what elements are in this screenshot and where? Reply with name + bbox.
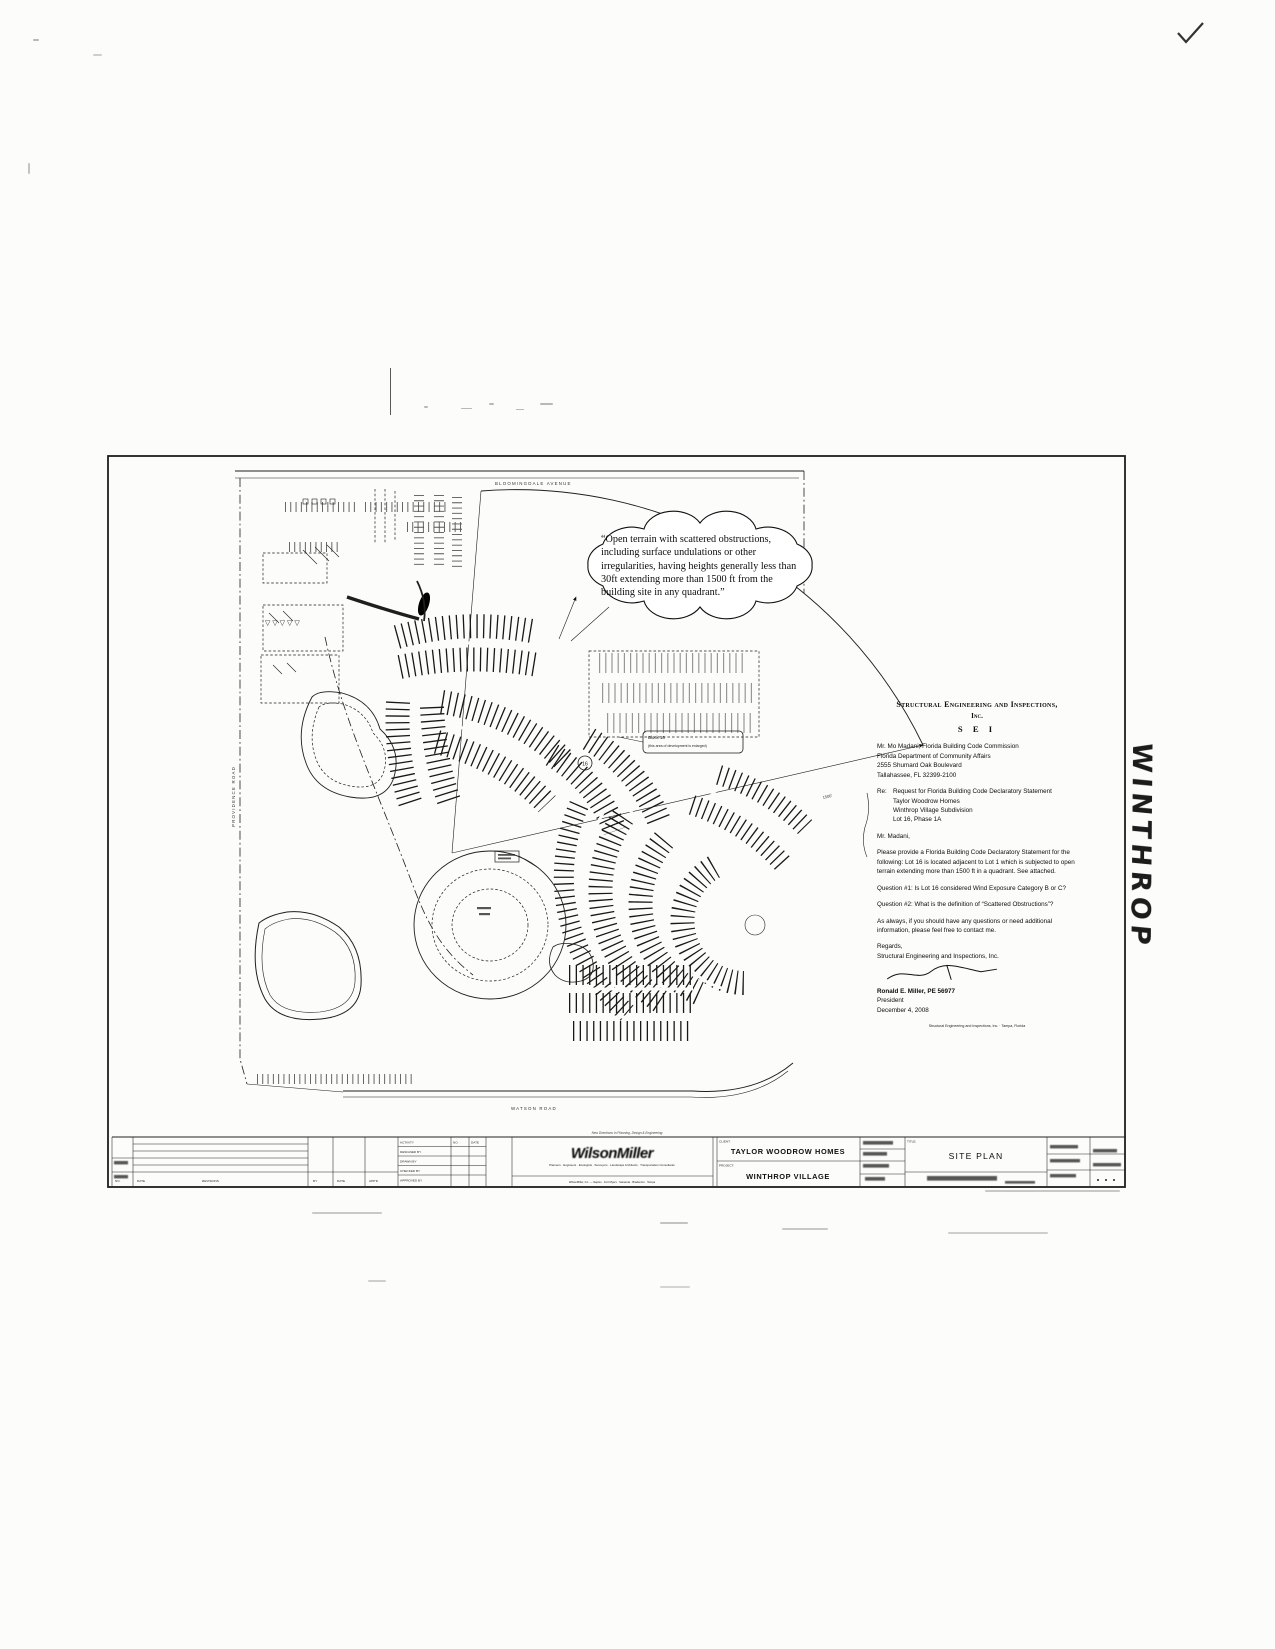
scan-speck <box>28 163 30 174</box>
client-name: TAYLOR WOODROW HOMES <box>731 1147 845 1156</box>
tb-rev-by: BY <box>313 1179 317 1183</box>
scan-speck <box>33 39 39 41</box>
handwritten-checkmark <box>1176 20 1206 46</box>
handwritten-margin-note: WINTHROP <box>1124 741 1157 951</box>
letter-para1: Please provide a Florida Building Code D… <box>877 848 1077 876</box>
letter-firm-name: Structural Engineering and Inspections, <box>877 699 1077 711</box>
re-label: Re: <box>877 787 893 825</box>
letter-para2: As always, if you should have any questi… <box>877 917 1077 936</box>
title-label: TITLE: <box>907 1140 916 1144</box>
drawing-number-smudge <box>927 1176 997 1181</box>
scan-speck <box>93 54 102 56</box>
scanned-site-plan-sheet: BLOOMINGDALE AVENUE PROVIDENCE ROAD WATS… <box>0 0 1275 1649</box>
letter-firm-inc: Inc. <box>877 711 1077 722</box>
tb-col-no: NO. <box>453 1141 459 1145</box>
firm-tagline: Planners · Engineers · Ecologists · Surv… <box>549 1163 675 1167</box>
letter-addressee: Mr. Mo Madani, Florida Building Code Com… <box>877 742 1077 780</box>
scan-stray-line <box>390 368 391 415</box>
letter-block: Structural Engineering and Inspections, … <box>877 699 1077 1033</box>
letter-salutation: Mr. Madani, <box>877 832 1077 841</box>
addressee-line: 2555 Shumard Oak Boulevard <box>877 761 1077 770</box>
scan-smudge <box>660 1286 690 1288</box>
scan-smudge <box>368 1280 386 1282</box>
map-note-box: Block 16 (this area of development is en… <box>619 731 743 753</box>
addressee-line: Florida Department of Community Affairs <box>877 752 1077 761</box>
tb-rev-appd: APP'D <box>369 1179 379 1183</box>
letter-re-block: Re: Request for Florida Building Code De… <box>877 787 1077 825</box>
future-phase-lots <box>589 651 759 737</box>
note-line1: Block 16 <box>648 735 665 740</box>
ponds <box>255 692 593 1020</box>
cloud-callout-text: “Open terrain with scattered obstruction… <box>601 533 799 600</box>
client-label: CLIENT: <box>719 1140 731 1144</box>
tb-rev-date2: DATE <box>337 1179 345 1183</box>
re-line: Lot 16, Phase 1A <box>893 815 1052 824</box>
tb-activity-3: CHECKED BY <box>400 1169 420 1173</box>
tb-rev-no: NO. <box>115 1179 121 1183</box>
sheet-title: SITE PLAN <box>949 1151 1004 1161</box>
road-label-left: PROVIDENCE ROAD <box>231 766 236 827</box>
tb-activity-0: ACTIVITY <box>400 1141 414 1145</box>
re-lines: Request for Florida Building Code Declar… <box>893 787 1052 825</box>
letter-question1: Question #1: Is Lot 16 considered Wind E… <box>877 884 1077 893</box>
tb-col-date: DATE <box>471 1141 479 1145</box>
letter-question2: Question #2: What is the definition of “… <box>877 900 1077 909</box>
re-line: Winthrop Village Subdivision <box>893 806 1052 815</box>
re-line: Request for Florida Building Code Declar… <box>893 787 1052 796</box>
scan-smudge <box>660 1222 688 1224</box>
firm-logo: WilsonMiller <box>571 1145 655 1162</box>
tb-smudge <box>1005 1181 1035 1184</box>
plat-map: BLOOMINGDALE AVENUE PROVIDENCE ROAD WATS… <box>231 471 923 1111</box>
note-line2: (this area of development is enlarged) <box>648 744 707 748</box>
project-name: WINTHROP VILLAGE <box>746 1172 830 1181</box>
scan-smudge <box>312 1212 382 1214</box>
signer-name: Ronald E. Miller, PE 56977 <box>877 987 1077 996</box>
lot-circle-label: 16 <box>582 762 588 768</box>
project-label: PROJECT: <box>719 1164 734 1168</box>
tb-rev-revs: REVISIONS <box>202 1179 219 1183</box>
addressee-line: Tallahassee, FL 32399-2100 <box>877 771 1077 780</box>
firm-address: WilsonMiller, Inc. — Naples · Fort Myers… <box>569 1180 656 1184</box>
closing-firm: Structural Engineering and Inspections, … <box>877 952 1077 961</box>
scan-smudge <box>782 1228 828 1230</box>
re-line: Taylor Woodrow Homes <box>893 797 1052 806</box>
scan-speck <box>461 408 472 409</box>
scan-speck <box>516 409 524 410</box>
closing-word: Regards, <box>877 942 1077 951</box>
tb-activity-4: APPROVED BY <box>400 1179 422 1183</box>
tb-rev-date: DATE <box>137 1179 145 1183</box>
tb-activity-2: DRAWN BY <box>400 1160 417 1164</box>
triangle-symbols: ▽ ▽ ▽ ▽ ▽ <box>265 620 300 627</box>
scan-speck <box>489 403 494 405</box>
title-block: ACTIVITY DESIGNED BY DRAWN BY CHECKED BY… <box>112 1131 1126 1186</box>
radius-label: 1500' <box>822 793 833 800</box>
firm-motto: New Directions In Planning, Design & Eng… <box>592 1131 663 1135</box>
signer-title: President <box>877 996 1077 1005</box>
letter-signer: Ronald E. Miller, PE 56977 President Dec… <box>877 987 1077 1015</box>
signature-scribble <box>885 961 1006 985</box>
scan-smudge <box>948 1232 1048 1234</box>
southeast-lot-fan <box>564 775 805 1013</box>
commercial-cluster: ▽ ▽ ▽ ▽ ▽ <box>261 489 461 703</box>
scan-speck <box>540 403 553 405</box>
scan-speck <box>424 406 428 408</box>
letter-date: December 4, 2008 <box>877 1006 1077 1015</box>
letter-footer: Structural Engineering and Inspections, … <box>865 1024 1089 1029</box>
letter-closing: Regards, Structural Engineering and Insp… <box>877 942 1077 961</box>
tb-activity-1: DESIGNED BY <box>400 1150 421 1154</box>
addressee-line: Mr. Mo Madani, Florida Building Code Com… <box>877 742 1077 751</box>
road-label-top: BLOOMINGDALE AVENUE <box>495 481 572 486</box>
letter-firm-abbr: S E I <box>877 723 1077 736</box>
road-label-bottom: WATSON ROAD <box>511 1106 557 1111</box>
scan-smudge <box>985 1190 1120 1192</box>
